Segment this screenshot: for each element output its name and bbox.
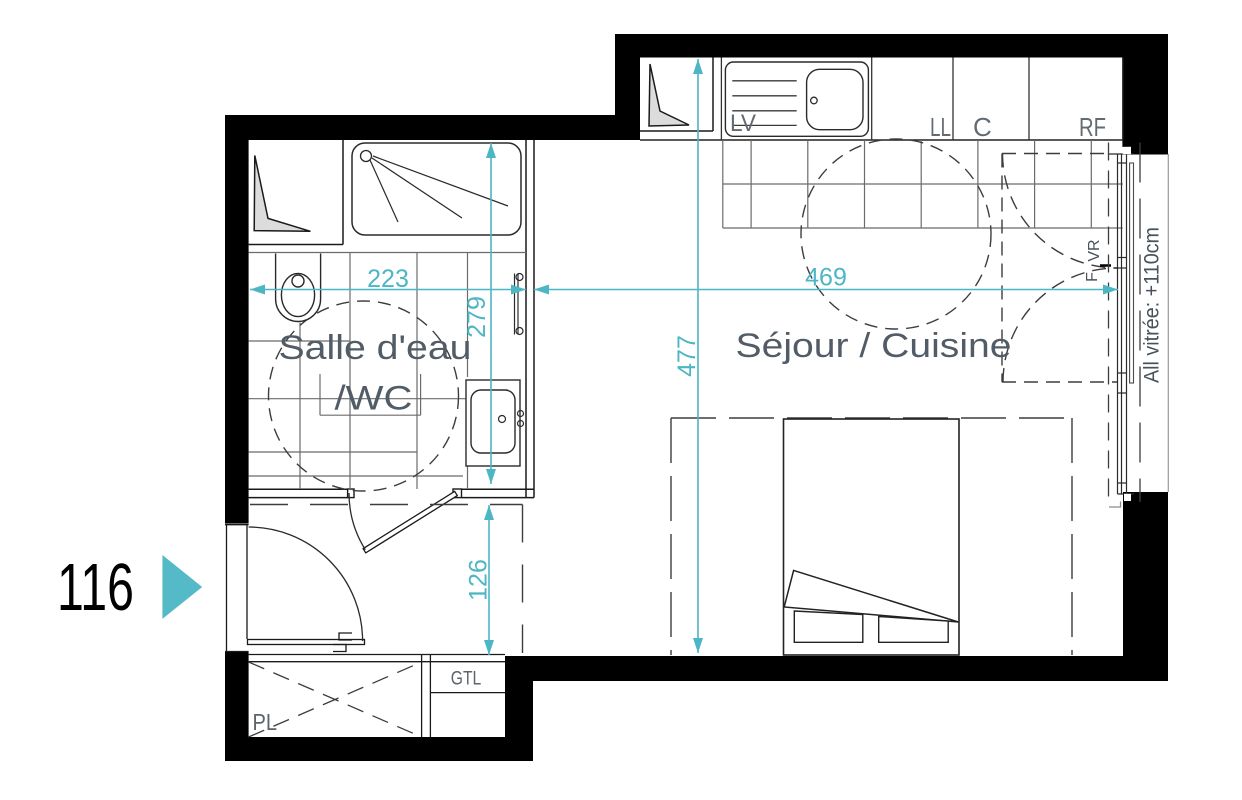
svg-text:116: 116 xyxy=(57,550,134,625)
svg-text:VR: VR xyxy=(1086,239,1103,261)
svg-text:All vitrée: +110cm: All vitrée: +110cm xyxy=(1141,227,1164,383)
svg-text:F: F xyxy=(1084,272,1101,282)
svg-text:LL: LL xyxy=(930,112,951,142)
svg-text:RF: RF xyxy=(1079,112,1106,142)
svg-text:126: 126 xyxy=(465,559,493,601)
svg-text:469: 469 xyxy=(805,264,847,292)
svg-text:477: 477 xyxy=(673,335,701,377)
svg-text:Salle d'eau: Salle d'eau xyxy=(279,329,472,367)
svg-text:PL: PL xyxy=(253,709,278,735)
svg-text:279: 279 xyxy=(463,296,491,338)
svg-text:223: 223 xyxy=(367,265,409,293)
svg-text:/WC: /WC xyxy=(335,380,413,418)
svg-text:C: C xyxy=(973,112,992,142)
svg-text:Séjour / Cuisine: Séjour / Cuisine xyxy=(736,327,1012,365)
svg-text:LV: LV xyxy=(730,110,756,137)
svg-text:GTL: GTL xyxy=(451,669,482,690)
